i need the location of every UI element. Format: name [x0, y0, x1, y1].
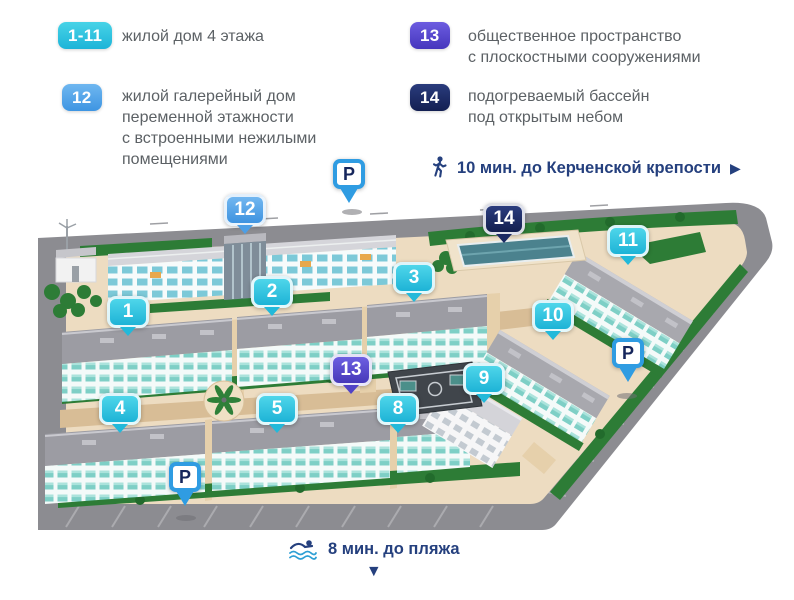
marker-label: P — [622, 343, 634, 364]
walk-distance-text: 10 мин. до Керченской крепости — [457, 159, 721, 178]
walk-distance-annotation: 10 мин. до Керченской крепости ▶ — [430, 156, 741, 180]
legend-text-14: подогреваемый бассейн под открытым небом — [468, 86, 649, 128]
map-marker-1: 1 — [107, 296, 149, 328]
marker-label: 1 — [123, 301, 134, 323]
map-marker-4: 4 — [99, 393, 141, 425]
legend-badge-12: 12 — [62, 84, 102, 111]
legend-badge-1-11: 1-11 — [58, 22, 112, 49]
infographic-masterplan: 1-11 жилой дом 4 этажа 12 жилой галерейн… — [0, 0, 794, 600]
marker-label: 13 — [340, 359, 361, 381]
marker-label: 3 — [409, 267, 420, 289]
arrow-down-icon: ▼ — [366, 564, 382, 580]
marker-label: 2 — [267, 281, 278, 303]
legend-text-13: общественное пространство с плоскостными… — [468, 26, 701, 68]
beach-distance-text: 8 мин. до пляжа — [328, 540, 460, 559]
marker-label: P — [179, 467, 191, 488]
map-marker-3: 3 — [393, 262, 435, 294]
map-marker-10: 10 — [532, 300, 574, 332]
parking-pin-bottom: P — [169, 462, 201, 492]
walking-person-icon — [430, 156, 448, 180]
greenery-shade — [115, 212, 685, 505]
swimmer-icon — [288, 538, 318, 560]
legend-badge-14: 14 — [410, 84, 450, 111]
map-marker-9: 9 — [463, 363, 505, 395]
road-markings-top — [150, 205, 608, 224]
legend-badge-13: 13 — [410, 22, 450, 49]
legend-text-1-11: жилой дом 4 этажа — [122, 26, 264, 47]
map-marker-12: 12 — [224, 194, 266, 226]
map-marker-8: 8 — [377, 393, 419, 425]
pool — [446, 230, 586, 271]
map-marker-2: 2 — [251, 276, 293, 308]
perimeter-road — [38, 203, 772, 530]
map-marker-14: 14 — [483, 203, 525, 235]
marker-label: 5 — [272, 398, 283, 420]
plaza-palm — [204, 381, 244, 421]
map-marker-11: 11 — [607, 225, 649, 257]
marker-label: 12 — [234, 199, 255, 221]
arrow-right-icon: ▶ — [730, 161, 741, 175]
legend-text-12: жилой галерейный дом переменной этажност… — [122, 86, 316, 170]
building-1 — [62, 318, 232, 402]
marker-label: 4 — [115, 398, 126, 420]
parking-pin-right: P — [612, 338, 644, 368]
marker-label: 14 — [493, 208, 514, 230]
parking-pin-top: P — [333, 159, 365, 189]
service-building — [56, 219, 96, 282]
beach-distance-annotation: 8 мин. до пляжа ▼ — [288, 538, 460, 580]
marker-label: P — [343, 164, 355, 185]
marker-label: 10 — [542, 305, 563, 327]
marker-label: 8 — [393, 398, 404, 420]
building-5 — [212, 408, 390, 491]
marker-label: 9 — [479, 368, 490, 390]
map-marker-5: 5 — [256, 393, 298, 425]
marker-label: 11 — [618, 230, 638, 252]
map-marker-13: 13 — [330, 354, 372, 386]
pin-shadows — [176, 209, 637, 521]
